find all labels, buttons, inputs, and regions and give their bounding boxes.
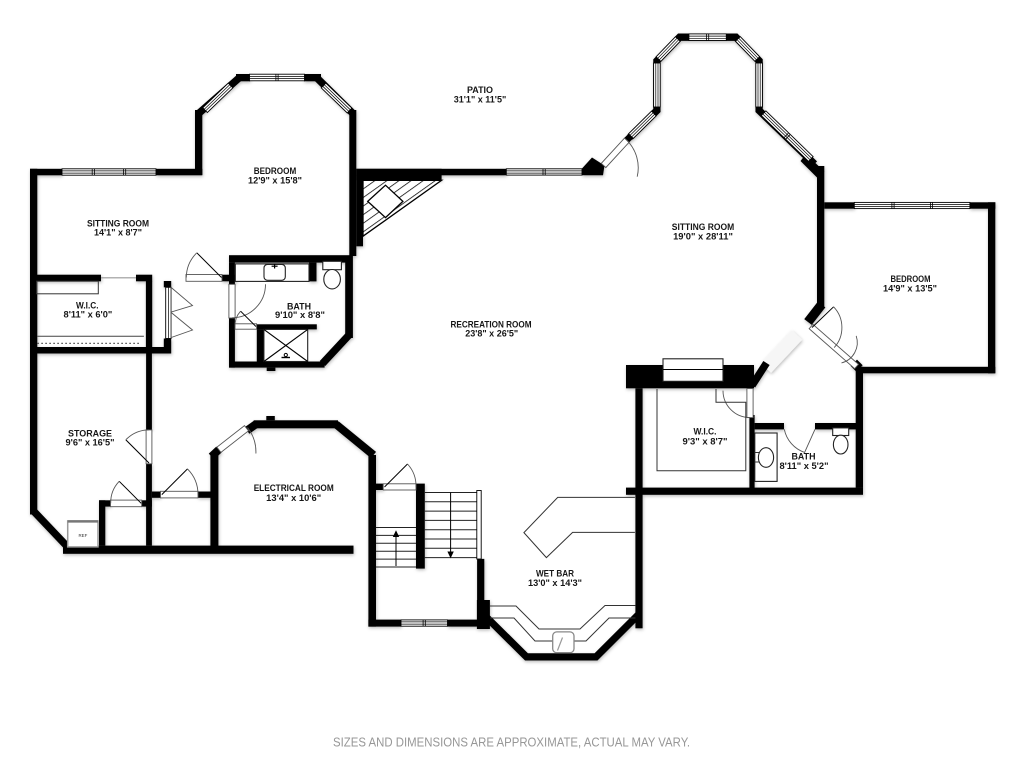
svg-text:WET BAR: WET BAR (536, 568, 574, 578)
svg-text:31'1" x 11'5": 31'1" x 11'5" (454, 95, 507, 105)
svg-text:ELECTRICAL ROOM: ELECTRICAL ROOM (254, 483, 334, 493)
svg-text:12'9" x 15'8": 12'9" x 15'8" (248, 176, 302, 186)
svg-text:BEDROOM: BEDROOM (891, 274, 931, 284)
svg-text:8'11" x 5'2": 8'11" x 5'2" (780, 461, 829, 471)
svg-text:SIZES AND DIMENSIONS ARE APPRO: SIZES AND DIMENSIONS ARE APPROXIMATE, AC… (333, 735, 690, 750)
svg-text:9'6" x 16'5": 9'6" x 16'5" (66, 438, 115, 448)
svg-text:BEDROOM: BEDROOM (254, 166, 297, 176)
svg-text:14'1" x 8'7": 14'1" x 8'7" (94, 228, 142, 238)
svg-text:8'11" x 6'0": 8'11" x 6'0" (64, 310, 113, 320)
svg-text:9'10" x 8'8": 9'10" x 8'8" (275, 310, 325, 320)
svg-text:SITTING ROOM: SITTING ROOM (672, 222, 735, 232)
svg-text:19'0" x 28'11": 19'0" x 28'11" (673, 231, 733, 241)
svg-text:REF: REF (79, 533, 88, 538)
svg-text:14'9" x 13'5": 14'9" x 13'5" (883, 284, 937, 294)
svg-text:13'0" x 14'3": 13'0" x 14'3" (528, 578, 582, 588)
svg-text:23'8" x 26'5": 23'8" x 26'5" (465, 329, 518, 339)
svg-text:13'4" x 10'6": 13'4" x 10'6" (266, 493, 321, 503)
svg-text:9'3" x 8'7": 9'3" x 8'7" (683, 437, 728, 447)
svg-text:PATIO: PATIO (467, 85, 493, 95)
svg-text:W.I.C.: W.I.C. (694, 427, 717, 437)
